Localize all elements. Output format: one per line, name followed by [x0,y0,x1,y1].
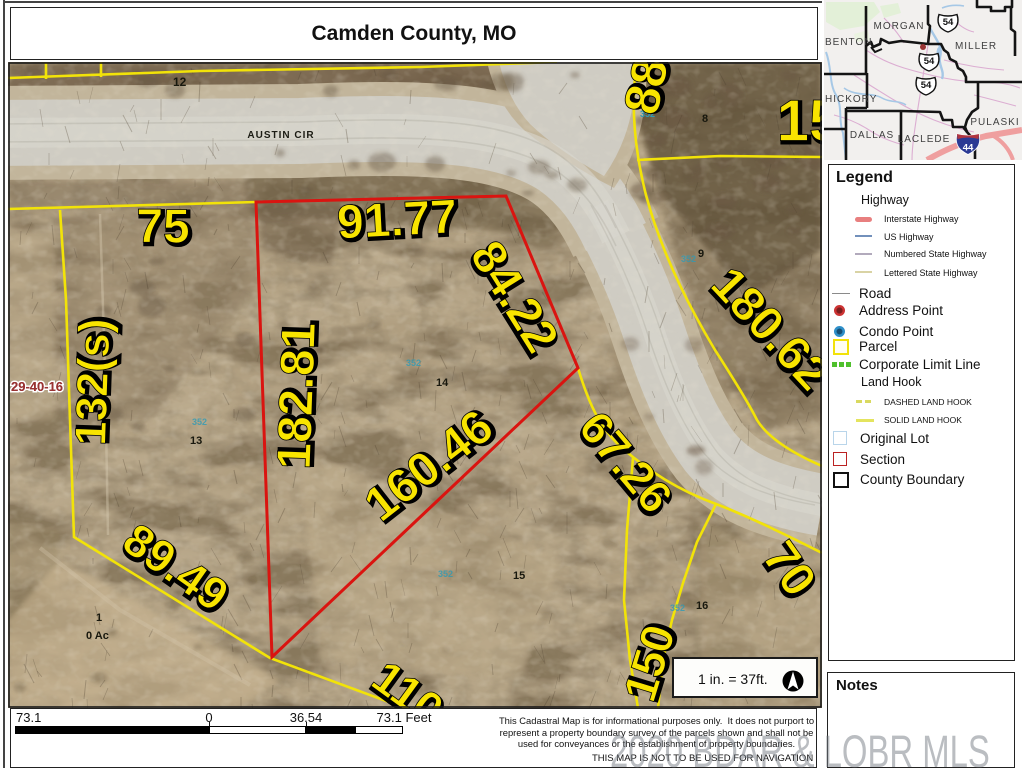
svg-text:MILLER: MILLER [955,41,997,52]
svg-text:352: 352 [406,358,421,368]
svg-text:HICKORY: HICKORY [825,94,877,105]
svg-text:132(s): 132(s) [66,318,119,447]
svg-text:75: 75 [136,201,189,254]
svg-text:54: 54 [943,17,954,28]
svg-text:352: 352 [670,603,685,613]
svg-text:8: 8 [702,113,708,125]
svg-text:12: 12 [173,75,187,89]
svg-text:91.77: 91.77 [336,190,459,249]
svg-text:352: 352 [438,569,453,579]
svg-text:AUSTIN CIR: AUSTIN CIR [247,130,314,141]
svg-text:1: 1 [96,612,102,624]
svg-text:1 in. = 37ft.: 1 in. = 37ft. [698,671,768,687]
svg-text:MORGAN: MORGAN [874,21,925,32]
svg-text:LACLEDE: LACLEDE [898,134,951,145]
svg-text:BENTON: BENTON [825,37,873,48]
svg-text:16: 16 [696,600,708,612]
svg-text:13: 13 [190,435,202,447]
svg-text:54: 54 [924,56,935,67]
svg-text:14: 14 [436,377,449,389]
svg-text:352: 352 [192,417,207,427]
svg-text:352: 352 [681,254,696,264]
svg-text:15: 15 [777,89,822,154]
svg-text:54: 54 [921,80,932,91]
svg-text:0 Ac: 0 Ac [86,630,109,642]
svg-text:182.81: 182.81 [268,322,326,471]
svg-text:44: 44 [963,143,974,154]
svg-text:29-40-16: 29-40-16 [11,379,63,394]
svg-text:PULASKI: PULASKI [970,117,1019,128]
svg-text:DALLAS: DALLAS [850,130,894,141]
svg-text:15: 15 [513,570,525,582]
svg-text:9: 9 [698,248,704,260]
svg-text:88: 88 [613,62,679,119]
